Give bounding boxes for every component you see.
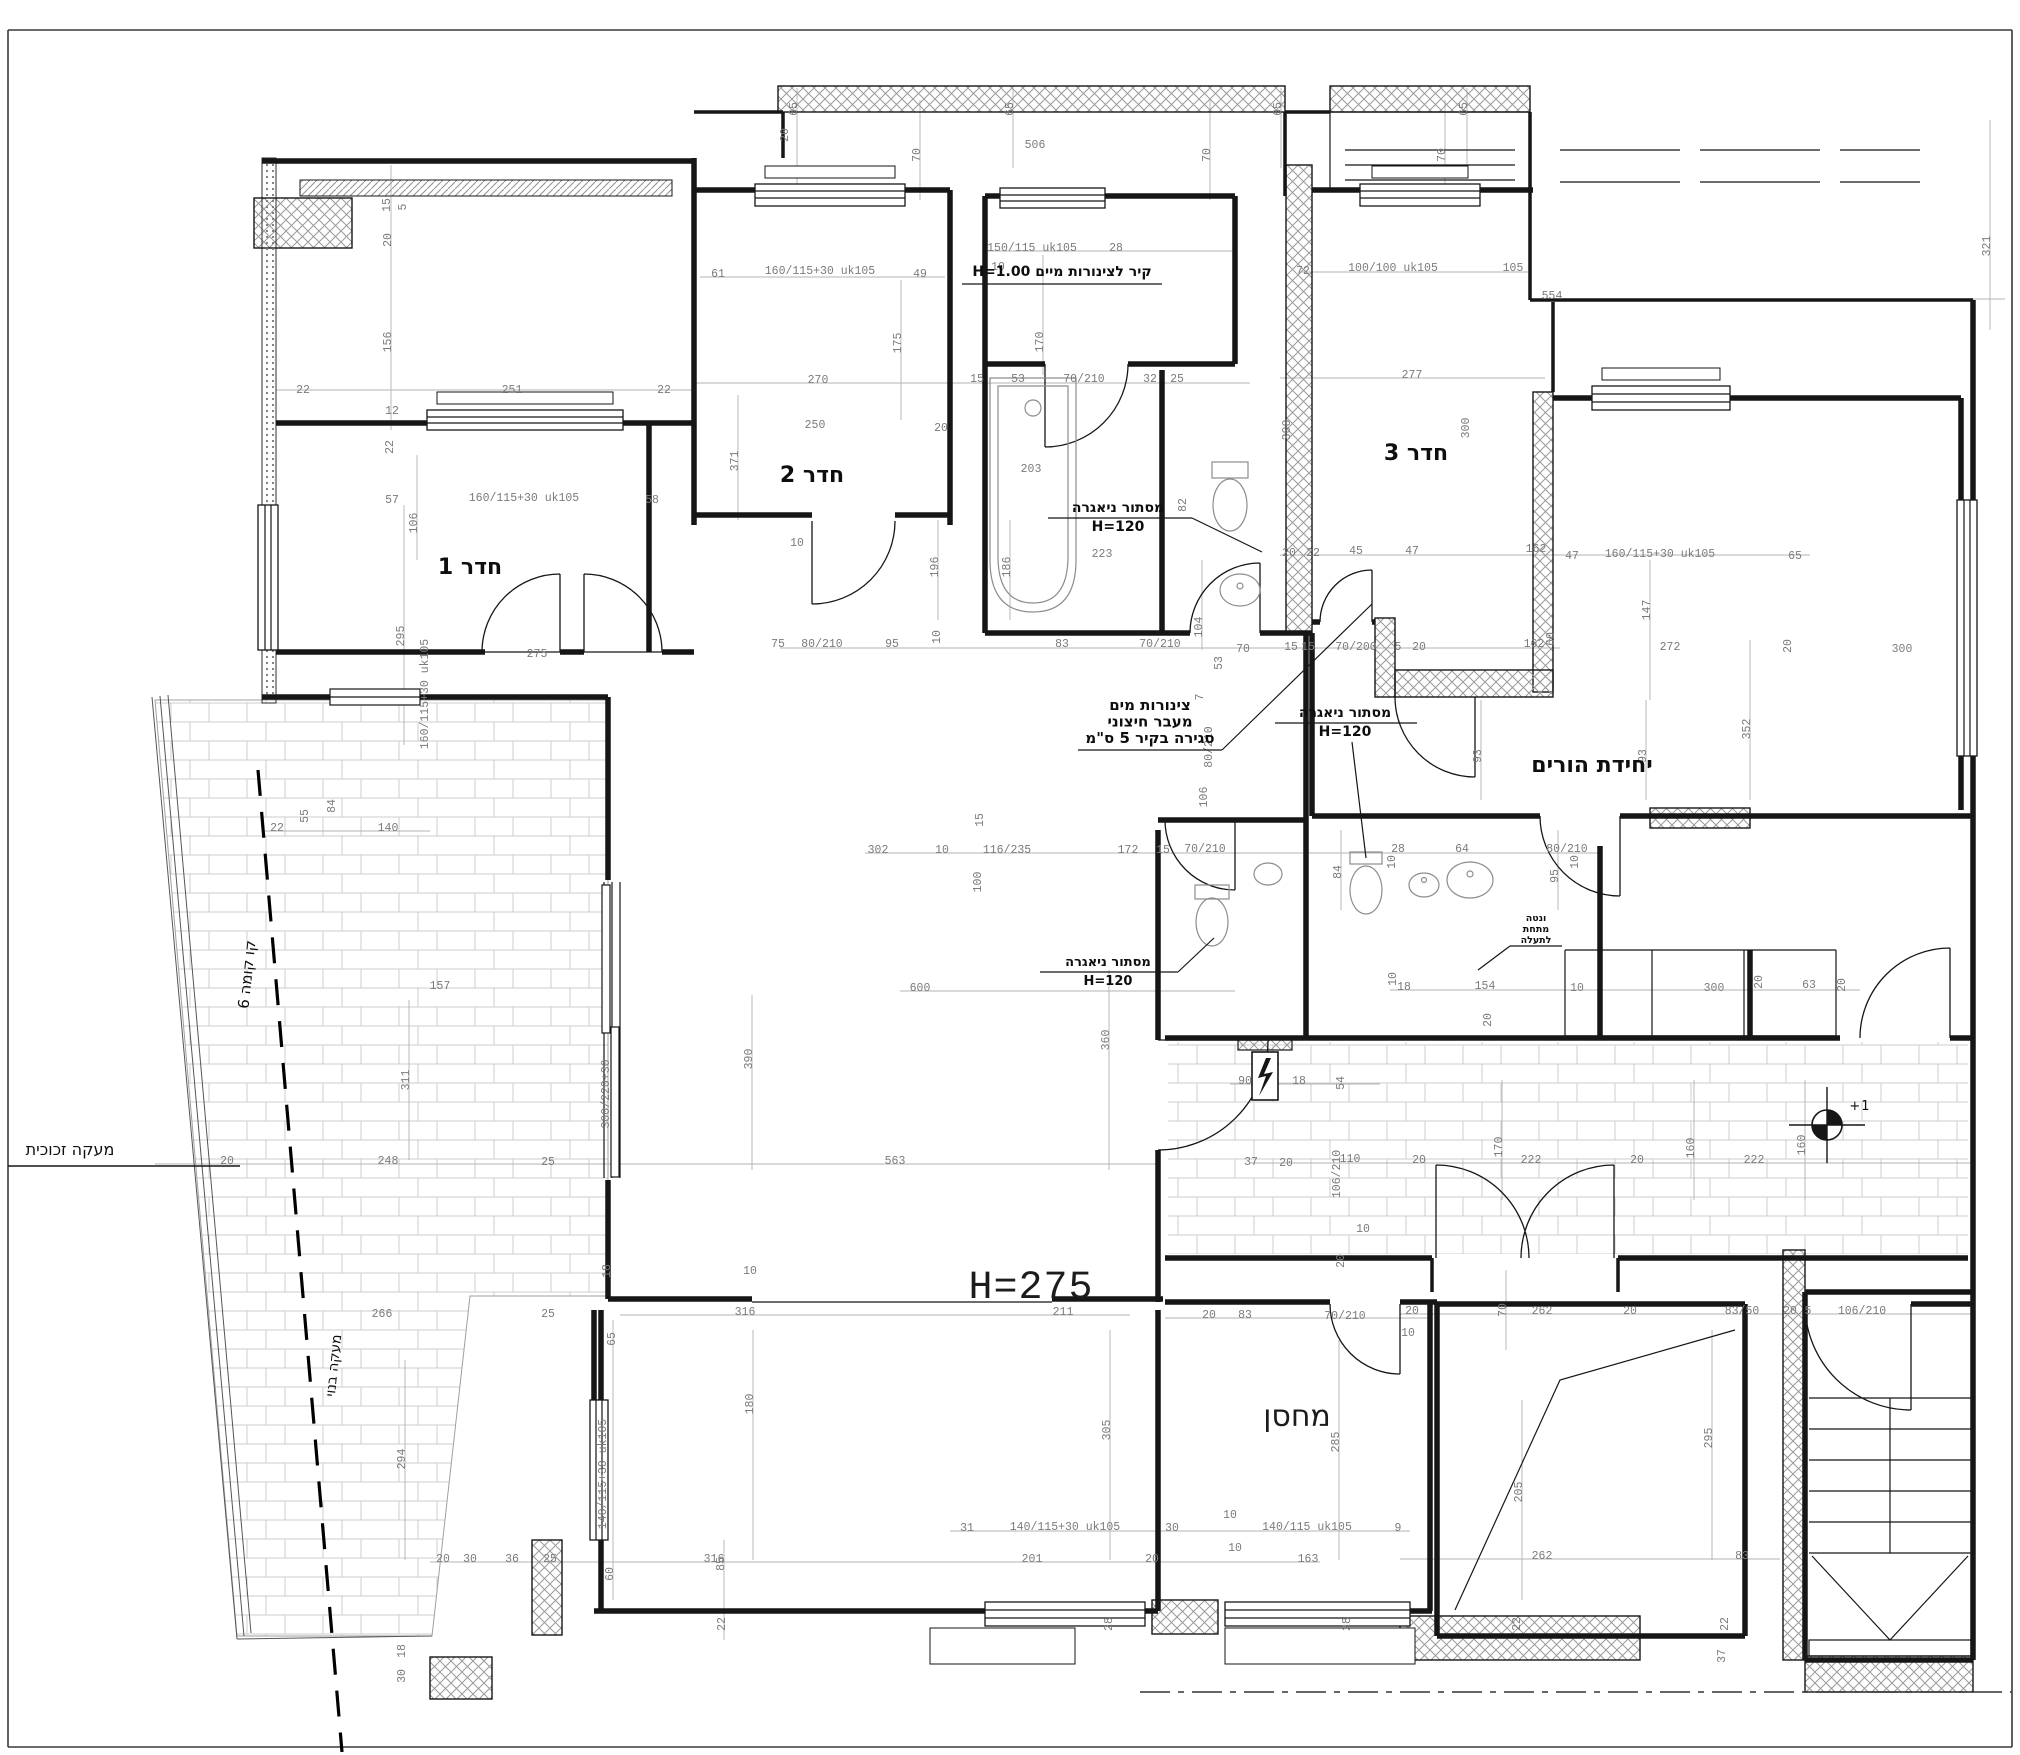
door-room2 (812, 521, 895, 604)
note-label: מתחת (1523, 924, 1550, 935)
dimension-label: 55 (299, 809, 312, 823)
dimension-label: 222 (1744, 1154, 1765, 1167)
dimension-label: 70 (1436, 148, 1449, 162)
dimension-label: 47 (1565, 550, 1579, 563)
room-label: מחסן (1263, 1399, 1331, 1434)
dimension-label: 22 (1306, 547, 1320, 560)
dimension-label: 105 (1503, 262, 1524, 275)
dimension-label: 321 (1981, 236, 1994, 257)
dimension-label: 64 (1455, 843, 1469, 856)
dimension-label: 15 (1301, 641, 1315, 654)
dimension-label: 12 (385, 405, 399, 418)
dimension-label: 25 (1170, 373, 1184, 386)
note-label: ונטה (1526, 913, 1547, 924)
dimension-label: 22 (384, 440, 397, 454)
dimension-label: 15 (974, 813, 987, 827)
dimension-label: 10 (1356, 1223, 1370, 1236)
dimension-label: 20 (1783, 1305, 1797, 1318)
dimension-label: 175 (892, 333, 905, 354)
dimension-label: 20 (1202, 1309, 1216, 1322)
dimension-label: 150/115 uk105 (987, 242, 1077, 255)
note-label: מעבר חיצוני (1107, 713, 1192, 731)
dimension-label: 140/115+30 uk105 (597, 1419, 610, 1530)
dimension-label: 147 (1641, 600, 1654, 621)
dimension-label: 10 (790, 537, 804, 550)
electrical-panel-icon (1252, 1052, 1278, 1100)
note-leader-line (1352, 742, 1366, 858)
dimension-label: 156 (382, 332, 395, 353)
dimension-label: 10 (935, 844, 949, 857)
door-master (1395, 697, 1475, 777)
dimension-label: 10 (1223, 1509, 1237, 1522)
note-label: +1 (1849, 1099, 1870, 1114)
window-room2 (755, 166, 905, 206)
dimension-label: 22 (716, 1617, 729, 1631)
dimension-label: 70/210 (1184, 843, 1226, 856)
toilet-wc (1212, 462, 1248, 531)
dimension-label: 104 (1193, 617, 1206, 638)
dimension-label: 63 (1802, 979, 1816, 992)
dimension-label: 20 (1279, 1157, 1293, 1170)
window-room3 (1360, 166, 1480, 206)
dimension-label: 160/115+30 uk105 (765, 265, 876, 278)
dimension-label: 20 (1753, 975, 1766, 989)
dimension-label: 80/210 (801, 638, 843, 651)
dimension-label: 140/115 uk105 (1262, 1521, 1352, 1534)
terrace-tiles (155, 700, 608, 1636)
note-leader-line (1192, 518, 1262, 552)
dimension-label: 162 (1526, 543, 1547, 556)
dimension-label: 20 (1145, 1553, 1159, 1566)
note-label: סגירה בקיר 5 ס"מ (1085, 729, 1214, 747)
dimension-label: 70/210 (1324, 1310, 1366, 1323)
dimension-label: 53 (1213, 656, 1226, 670)
dimension-label: 22 (1719, 1617, 1732, 1631)
sink-master-1 (1409, 873, 1439, 897)
dimension-label: 28 (1341, 1617, 1354, 1631)
dimension-label: 45 (1349, 545, 1363, 558)
note-label: לתעלה (1521, 935, 1552, 946)
dimension-label: 85 (715, 1557, 728, 1571)
room-label: חדר 3 (1384, 441, 1448, 466)
window-bottom-2 (1225, 1602, 1415, 1664)
toilet-master-bath (1350, 852, 1382, 914)
dimension-label: 160/115+30 uk105 (419, 639, 432, 750)
dimension-label: 285 (1330, 1432, 1343, 1453)
dimension-label: 371 (729, 451, 742, 472)
dimension-label: 65 (1788, 550, 1802, 563)
dimension-label: 272 (1660, 641, 1681, 654)
dimension-label: 20 (1282, 547, 1296, 560)
dimension-label: 295 (1703, 1428, 1716, 1449)
sink-master-2 (1447, 862, 1493, 898)
note-label: קיר לצינורות מיים H=1.00 (972, 264, 1151, 280)
dimension-label: 10 (1569, 855, 1582, 869)
dimension-label: 106/210 (1331, 1150, 1344, 1198)
dimension-label: 186 (1001, 557, 1014, 578)
dimension-label: 82 (1177, 498, 1190, 512)
dimension-label: 300 (1460, 418, 1473, 439)
dimension-label: 32 (1143, 373, 1157, 386)
dimension-label: 15 (1284, 641, 1298, 654)
dimension-label: 20 (1412, 641, 1426, 654)
dimension-label: 201 (1022, 1553, 1043, 1566)
dimension-label: 205 (1513, 1482, 1526, 1503)
dimension-label: 250 (805, 419, 826, 432)
dimension-label: 390 (743, 1049, 756, 1070)
dimension-label: 20 (1482, 1013, 1495, 1027)
dimension-label: 7 (1194, 694, 1207, 701)
dimension-label: 10 (1401, 1327, 1415, 1340)
dimension-label: 170 (1493, 1137, 1506, 1158)
dimension-label: 5 (1805, 1305, 1812, 1318)
dimension-label: 154 (1475, 980, 1496, 993)
dimension-label: 57 (385, 494, 399, 507)
dimension-label: 20 (1836, 978, 1849, 992)
dimension-label: 106 (408, 513, 421, 534)
dimension-label: 70/210 (1139, 638, 1181, 651)
note-label: מסתור ניאגרה (1299, 705, 1391, 721)
dimension-label: 15 (970, 373, 984, 386)
dimension-label: 65 (788, 102, 801, 116)
dimension-label: 30 (463, 1553, 477, 1566)
dimension-label: 10 (1228, 1542, 1242, 1555)
dimension-label: 65 (1272, 102, 1285, 116)
dimension-label: 5 (397, 203, 410, 210)
door-room3 (1320, 570, 1372, 622)
dimension-label: 160/115+30 uk105 (1605, 548, 1716, 561)
dimension-label: 25 (543, 1553, 557, 1566)
dimension-label: 10 (1387, 972, 1400, 986)
dimension-label: 563 (885, 1155, 906, 1168)
door-stairs-room (1805, 1304, 1911, 1410)
dimension-label: 30 (396, 1669, 409, 1683)
dimension-label: 18 (601, 1264, 614, 1278)
note-label: צינורות מים (1109, 696, 1191, 714)
note-label: מסתור ניאגרה (1072, 500, 1164, 516)
dimension-label: 600 (910, 982, 931, 995)
room-label: חדר 1 (438, 555, 502, 580)
sink-wc (1220, 574, 1260, 606)
dimension-label: 22 (1511, 1617, 1524, 1631)
dimension-label: 58 (645, 494, 659, 507)
dimension-label: 20 (934, 422, 948, 435)
dimension-label: 20 (220, 1155, 234, 1168)
window-pipes-closet (1000, 188, 1105, 208)
dimension-label: 70/210 (1063, 373, 1105, 386)
dimension-label: 83 (1238, 1309, 1252, 1322)
dimension-label: 106/210 (1838, 1305, 1886, 1318)
dimension-label: 37 (1244, 1156, 1258, 1169)
dimension-label: 163 (1298, 1553, 1319, 1566)
dimension-label: 100/100 uk105 (1348, 262, 1438, 275)
dimension-label: 305 (1101, 1420, 1114, 1441)
dimension-label: 15 (381, 198, 394, 212)
dimension-label: 100 (972, 872, 985, 893)
dimension-label: 20 (1405, 1305, 1419, 1318)
dimension-label: 311 (400, 1070, 413, 1091)
dimension-label: 83/50 (1725, 1305, 1760, 1318)
note-label: H=120 (1092, 519, 1145, 535)
dimension-label: 28 (1109, 242, 1123, 255)
dimension-label: 203 (1021, 463, 1042, 476)
dimension-label: 60 (604, 1567, 617, 1581)
note-label: מעקה זכוכית (26, 1140, 115, 1159)
dimension-label: 31 (960, 1522, 974, 1535)
dimension-label: 172 (1118, 844, 1139, 857)
door-room1 (482, 574, 560, 652)
floor-plan-canvas: 155201562225122122257160/115+30 uk105581… (0, 0, 2020, 1755)
sink-powder (1254, 863, 1282, 885)
dimension-label: 270 (808, 374, 829, 387)
dimension-label: 20 (1630, 1154, 1644, 1167)
dimension-label: 37 (1716, 1649, 1729, 1663)
dimension-label: 84 (1332, 865, 1345, 879)
dimension-label: 80/210 (1546, 843, 1588, 856)
dimension-label: 70 (1236, 643, 1250, 656)
room-label: חדר 2 (780, 463, 844, 488)
dimension-label: 90 (1238, 1075, 1252, 1088)
dimension-label: 248 (378, 1155, 399, 1168)
floor-plan-page: 155201562225122122257160/115+30 uk105581… (0, 0, 2020, 1755)
dimension-label: 70 (1201, 148, 1214, 162)
dimension-label: 18 (1292, 1075, 1306, 1088)
dimension-label: 196 (929, 557, 942, 578)
dimension-label: 20 (436, 1553, 450, 1566)
dimension-label: 65 (1458, 102, 1471, 116)
dimension-label: 10 (931, 630, 944, 644)
dimension-label: 84 (326, 799, 339, 813)
dimension-label: 70/200 (1335, 641, 1377, 654)
dimension-label: 83 (1735, 1550, 1749, 1563)
dimension-label: 140/115+30 uk105 (1010, 1521, 1121, 1534)
window-room1-left (258, 505, 278, 650)
dimension-label: 360 (1100, 1030, 1113, 1051)
dimension-label: 116/235 (983, 844, 1031, 857)
toilet-powder (1195, 885, 1229, 946)
dimension-label: 160 (1685, 1138, 1698, 1159)
dimension-label: 294 (396, 1449, 409, 1470)
dimension-label: 28 (1391, 843, 1405, 856)
dimension-label: 160 (1796, 1135, 1809, 1156)
dimension-label: 316 (735, 1306, 756, 1319)
dimension-label: 10 (1570, 982, 1584, 995)
dimension-label: 25 (541, 1156, 555, 1169)
dimension-label: 295 (395, 626, 408, 647)
dimension-label: 5 (1395, 641, 1402, 654)
dimension-label: 262 (1532, 1305, 1553, 1318)
entry-hall-tiles (1168, 1042, 1968, 1254)
note-label: מסתור ניאגרה (1065, 955, 1151, 970)
dimension-label: 22 (270, 822, 284, 835)
door-closet-corridor (1860, 948, 1950, 1038)
dimension-label: 20 (1412, 1154, 1426, 1167)
dimension-label: 20 (382, 233, 395, 247)
dimension-label: 70 (1497, 1303, 1510, 1317)
dimension-label: 266 (372, 1308, 393, 1321)
dimension-label: 53 (1011, 373, 1025, 386)
dimension-label: 22 (296, 384, 310, 397)
dimension-label: 262 (1532, 1550, 1553, 1563)
dimension-label: 162 (1524, 638, 1545, 651)
note-label: H=120 (1084, 974, 1133, 989)
dimension-label: 222 (1521, 1154, 1542, 1167)
dimension-label: 72 (1296, 265, 1310, 278)
note-leader-line (1178, 938, 1214, 972)
window-room1-top (427, 392, 623, 430)
dimension-label: 140 (378, 822, 399, 835)
dimension-label: 352 (1741, 719, 1754, 740)
dimension-label: 70 (911, 148, 924, 162)
room-label: H=275 (968, 1266, 1093, 1311)
dimension-label: 25 (541, 1308, 555, 1321)
dimension-label: 93 (1472, 749, 1485, 763)
window-master-east (1957, 500, 1977, 756)
dimension-label: 223 (1092, 548, 1113, 561)
staircase (1809, 1398, 1971, 1656)
dimension-label: 54 (1335, 1076, 1348, 1090)
dimension-label: 30 (1165, 1522, 1179, 1535)
dimension-label: 300 (1281, 420, 1294, 441)
dimension-label: 300/220+30 (600, 1059, 613, 1128)
dimension-label: 9 (1395, 1522, 1402, 1535)
dimension-label: 20 (1782, 639, 1795, 653)
dimension-label: 61 (711, 268, 725, 281)
dimension-label: 506 (1025, 139, 1046, 152)
dimension-label: 554 (1542, 290, 1563, 303)
dimension-label: 251 (502, 384, 523, 397)
dimension-label: 157 (430, 980, 451, 993)
dimension-label: 106 (1198, 787, 1211, 808)
dimension-label: 36 (505, 1553, 519, 1566)
dimension-label: 65 (1004, 102, 1017, 116)
dimension-label: 275 (527, 648, 548, 661)
dimension-label: 170 (1034, 332, 1047, 353)
room-label: יחידת הורים (1531, 753, 1652, 778)
dimension-label: 20 (1623, 1305, 1637, 1318)
dimension-label: 28 (1103, 1617, 1116, 1631)
dimension-label: 20 (1335, 1254, 1348, 1268)
dimension-label: 60 (1545, 632, 1558, 646)
dimension-label: 300 (1892, 643, 1913, 656)
dimension-label: 49 (913, 268, 927, 281)
dimension-label: 160/115+30 uk105 (469, 492, 580, 505)
dimension-label: 302 (868, 844, 889, 857)
dimension-label: 95 (885, 638, 899, 651)
dimension-label: 300 (1704, 982, 1725, 995)
dimension-label: 277 (1402, 369, 1423, 382)
note-label: H=120 (1319, 724, 1372, 740)
window-master (1592, 368, 1730, 410)
dimension-label: 10 (1386, 855, 1399, 869)
dimension-label: 65 (606, 1332, 619, 1346)
dimension-label: 18 (396, 1644, 409, 1658)
window-room1-south (330, 689, 420, 705)
dimension-label: 95 (1549, 869, 1562, 883)
dimension-label: 15 (1156, 844, 1170, 857)
dimension-label: 180 (744, 1394, 757, 1415)
dimension-label: 20 (779, 128, 792, 142)
dimension-label: 22 (657, 384, 671, 397)
dimension-label: 83 (1055, 638, 1069, 651)
note-leader-line (1478, 946, 1510, 970)
dimension-label: 10 (743, 1265, 757, 1278)
dimension-label: 47 (1405, 545, 1419, 558)
dimension-label: 75 (771, 638, 785, 651)
